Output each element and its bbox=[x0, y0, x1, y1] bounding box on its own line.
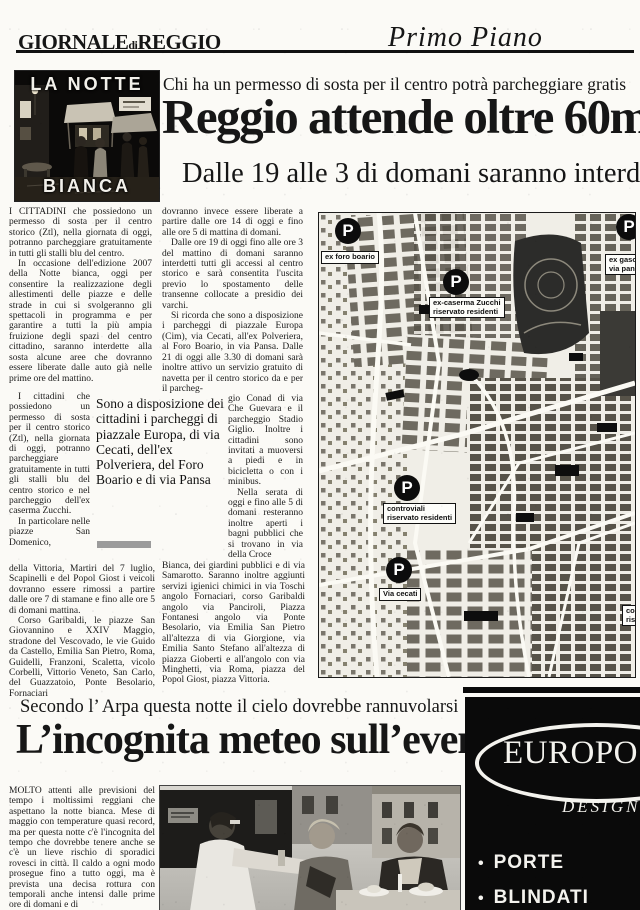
pull-quote-divider bbox=[97, 541, 151, 548]
bullet-icon: • bbox=[478, 890, 485, 907]
parking-label: ex gaso via pans bbox=[605, 254, 636, 275]
paragraph: In occasione dell'edizione 2007 della No… bbox=[9, 259, 152, 384]
ad-brand-name: EUROPO bbox=[503, 735, 638, 772]
parking-icon: P bbox=[335, 218, 361, 244]
parking-label: ex-caserma Zucchi riservato residenti bbox=[429, 297, 505, 318]
paragraph: Nella serata di oggi e fino alle 5 di do… bbox=[228, 488, 303, 561]
advertisement: EUROPO DESIGN •PORTE •BLINDATI bbox=[465, 697, 640, 910]
paragraph: Corso Garibaldi, le piazze San Giovannin… bbox=[9, 616, 155, 699]
pull-quote: Sono a disposizione dei cittadini i parc… bbox=[96, 396, 233, 488]
parking-icon: P bbox=[386, 557, 412, 583]
article-column-1-bottom: della Vittoria, Martiri del 7 luglio, Sc… bbox=[9, 564, 155, 699]
parking-icon: P bbox=[443, 269, 469, 295]
street-map-graphic bbox=[319, 213, 635, 677]
paragraph: della Vittoria, Martiri del 7 luglio, Sc… bbox=[9, 564, 155, 616]
bullet-icon: • bbox=[478, 855, 485, 872]
paragraph: I cittadini che possiedono un permesso d… bbox=[9, 392, 90, 517]
ad-top-rule bbox=[463, 687, 640, 693]
parking-label: ex foro boario bbox=[321, 251, 379, 264]
night-photo: LA NOTTE BIANCA bbox=[14, 70, 160, 202]
masthead-rule bbox=[16, 50, 634, 53]
parking-label: controviali riservato residenti bbox=[383, 503, 456, 524]
weather-headline: L’incognita meteo sull’evento bbox=[16, 716, 513, 764]
newspaper-page: GIORNALEdiREGGIO Primo Piano bbox=[0, 0, 640, 910]
ad-bullet-item: •PORTE bbox=[478, 852, 564, 874]
paragraph: In particolare nelle piazze San Domenico… bbox=[9, 517, 90, 548]
paragraph: dovranno invece essere liberate a partir… bbox=[162, 207, 303, 238]
city-map: P ex foro boario P ex-caserma Zucchi ris… bbox=[318, 212, 636, 678]
paragraph: I CITTADINI che possiedono un permesso d… bbox=[9, 207, 152, 259]
paragraph: gio Conad di via Che Guevara e il parche… bbox=[228, 394, 303, 488]
parking-icon: P bbox=[616, 214, 636, 240]
article-column-2-bottom: Bianca, dei giardini pubblici e di via S… bbox=[162, 561, 305, 686]
cafe-photo bbox=[159, 785, 461, 910]
paragraph: MOLTO attenti alle previsioni del tempo … bbox=[9, 786, 155, 910]
parking-label-partial: con rise bbox=[622, 605, 636, 626]
cafe-photo-graphic bbox=[160, 786, 460, 910]
ad-brand-subtitle: DESIGN bbox=[562, 797, 640, 817]
article-column-2-narrow: gio Conad di via Che Guevara e il parche… bbox=[228, 394, 303, 561]
weather-article-column: MOLTO attenti alle previsioni del tempo … bbox=[9, 786, 155, 910]
article-column-1: I CITTADINI che possiedono un permesso d… bbox=[9, 207, 152, 384]
paragraph: Dalle ore 19 di oggi fino alle ore 3 del… bbox=[162, 238, 303, 311]
paragraph: Si ricorda che sono a disposizione i par… bbox=[162, 311, 303, 394]
parking-icon: P bbox=[394, 475, 420, 501]
night-photo-title-top: LA NOTTE bbox=[15, 74, 159, 95]
article-column-2: dovranno invece essere liberate a partir… bbox=[162, 207, 303, 394]
main-headline: Reggio attende oltre 60m bbox=[162, 90, 640, 144]
ad-bullet-item: •BLINDATI bbox=[478, 887, 589, 909]
paragraph: Bianca, dei giardini pubblici e di via S… bbox=[162, 561, 305, 686]
article-column-1-narrow: I cittadini che possiedono un permesso d… bbox=[9, 392, 90, 548]
night-photo-title-bottom: BIANCA bbox=[15, 176, 159, 197]
parking-label: Via cecati bbox=[379, 588, 421, 601]
weather-kicker: Secondo l’ Arpa questa notte il cielo do… bbox=[20, 697, 458, 718]
main-subhead: Dalle 19 alle 3 di domani saranno interd… bbox=[182, 158, 640, 190]
